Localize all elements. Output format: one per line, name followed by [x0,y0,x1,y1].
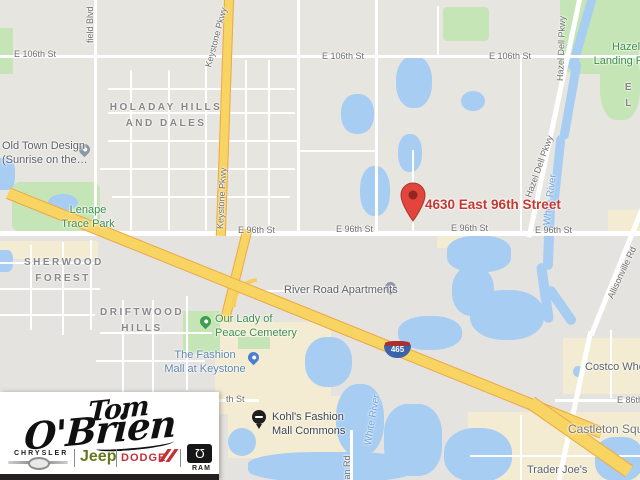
street [520,415,522,480]
road [297,0,300,231]
street [268,60,270,230]
street [437,6,439,56]
street [245,60,247,230]
pond [0,250,13,272]
poi-label-old-town-design[interactable]: Old Town Design (Sunrise on the… [2,140,88,168]
chrysler-badge-icon [28,457,50,470]
street-label-e-86th-st: E 86th St [617,395,640,405]
ram-wordmark: RAM [192,465,211,472]
pond [398,134,422,172]
map-canvas[interactable]: E 106th St E 106th St E 106th St E 96th … [0,0,640,480]
street-label-e-106th-st: E 106th St [489,51,531,61]
street-label-e-96th-st: E 96th St [535,225,572,235]
street [108,88,295,90]
pond [341,94,374,134]
street-label-dean-rd: Dean Rd [342,455,352,480]
street [0,314,95,316]
park-area [0,28,13,74]
neighborhood-label-driftwood: DRIFTWOOD HILLS [100,305,184,337]
street-label-e-106th-st: E 106th St [14,49,56,59]
brand-divider [116,449,117,467]
street [168,70,170,230]
pond [396,56,432,108]
dealer-logo[interactable]: Tom O'Brien CHRYSLER Jeep DODGE Ω RAM [0,392,219,480]
river-lake [228,428,256,456]
destination-marker-icon[interactable] [400,182,426,222]
street-label-e-96th-st: E 96th St [238,225,275,235]
dodge-wordmark: DODGE [121,452,166,464]
street-label-partial: th St [226,394,245,404]
park-area [443,7,489,41]
street [205,60,207,230]
poi-label-river-road-apartments[interactable]: River Road Apartments [284,284,398,298]
neighborhood-label-sherwood: SHERWOOD FOREST [24,255,102,287]
chrysler-wordmark: CHRYSLER [14,450,68,457]
poi-label-our-lady-of-peace[interactable]: Our Lady of Peace Cemetery [215,313,297,341]
pond [461,91,485,111]
poi-label-hazel-landing-park[interactable]: Hazel Landing Park [576,41,640,69]
poi-pin-kohls-tail [256,424,262,429]
poi-label-castleton-square[interactable]: Castleton Square [568,422,640,437]
brand-divider [74,449,75,467]
street [0,288,100,290]
destination-address-label[interactable]: 4630 East 96th Street [425,197,561,212]
ram-head-icon: Ω [187,444,212,463]
poi-pin-kohls[interactable] [252,410,266,424]
poi-label-lenape-trace-park[interactable]: Lenape Trace Park [56,204,120,232]
street-label-e-96th-st: E 96th St [336,224,373,234]
jeep-wordmark: Jeep [80,448,116,466]
poi-label-costco[interactable]: Costco Wholesale [585,361,640,375]
river-lake [470,290,544,340]
street-label-e-106th-st: E 106th St [322,51,364,61]
river-lake [444,428,512,480]
street-label-westfield-blvd: field Blvd [85,6,95,43]
street-label-e-96th-st: E 96th St [451,223,488,233]
poi-label-trader-joes[interactable]: Trader Joe's [527,464,587,478]
neighborhood-label-holaday: HOLADAY HILLS AND DALES [108,100,224,132]
river-lake [248,452,416,480]
brand-divider [180,449,181,467]
shield-number: 465 [384,346,411,354]
street [300,150,376,152]
logo-bottom-bar [0,474,219,480]
neighborhood-label-partial: E L [619,80,640,112]
poi-label-fashion-mall[interactable]: The Fashion Mall at Keystone [163,349,247,377]
road [375,0,378,231]
poi-label-kohls-commons[interactable]: Kohl's Fashion Mall Commons [272,411,345,439]
river-lake [305,337,352,387]
street [130,70,132,230]
street [112,196,290,198]
